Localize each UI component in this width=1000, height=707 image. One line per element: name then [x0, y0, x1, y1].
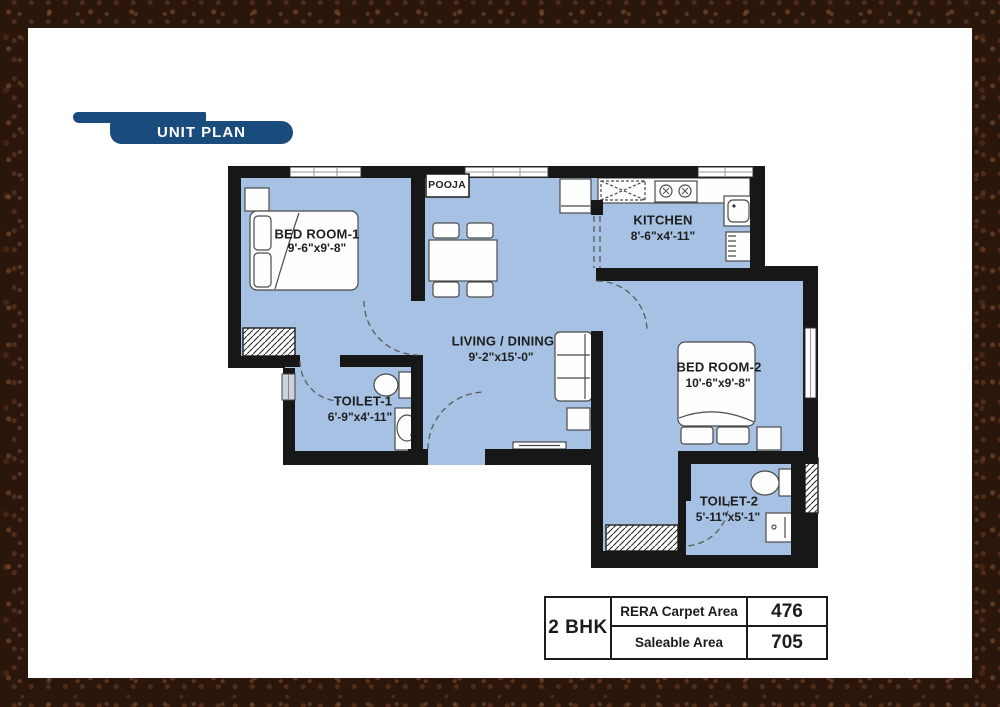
rera-carpet-area-value: 476 [748, 598, 826, 627]
kitchen-sink [724, 196, 753, 226]
room-dims-bedroom1: 9'-6"x9'-8" [288, 241, 346, 255]
room-label-bedroom2: BED ROOM-2 [676, 360, 761, 375]
window-bedroom1 [290, 167, 361, 177]
room-label-bedroom1: BED ROOM-1 [274, 227, 359, 242]
window-kitchen [698, 167, 753, 177]
window-bedroom2 [805, 328, 816, 398]
room-dims-living: 9'-2"x15'-0" [468, 350, 533, 364]
sofa [555, 332, 592, 401]
page-title: UNIT PLAN [157, 124, 246, 141]
page-card: UNIT PLAN [28, 28, 972, 678]
room-label-toilet1: TOILET-1 [334, 394, 392, 409]
room-label-kitchen: KITCHEN [633, 213, 692, 228]
room-dims-kitchen: 8'-6"x4'-11" [631, 229, 695, 243]
room-dims-toilet1: 6'-9"x4'-11" [328, 410, 392, 424]
unit-type-cell: 2 BHK [546, 598, 612, 658]
saleable-area-value: 705 [748, 627, 826, 658]
toilet2-wc [751, 469, 792, 496]
tv-unit [513, 442, 566, 449]
cabinet [560, 179, 591, 213]
saleable-area-label: Saleable Area [612, 627, 748, 658]
kitchen-appliance [726, 232, 753, 261]
toilet2-basin [766, 513, 792, 542]
area-summary-table: 2 BHK RERA Carpet Area 476 Saleable Area… [544, 596, 828, 660]
room-dims-toilet2: 5'-11"x5'-1" [696, 510, 760, 524]
window-living [465, 167, 548, 177]
side-table [567, 408, 590, 430]
rera-carpet-area-label: RERA Carpet Area [612, 598, 748, 627]
header-badge: UNIT PLAN [110, 121, 293, 144]
floor-plan: POOJA BED ROOM-1 9'-6"x9'-8" KITCHEN 8'-… [223, 156, 833, 576]
room-label-pooja: POOJA [428, 179, 466, 191]
room-label-toilet2: TOILET-2 [700, 494, 758, 509]
room-label-living: LIVING / DINING [452, 334, 555, 349]
room-dims-bedroom2: 10'-6"x9'-8" [685, 376, 750, 390]
vent-toilet1 [282, 374, 295, 400]
